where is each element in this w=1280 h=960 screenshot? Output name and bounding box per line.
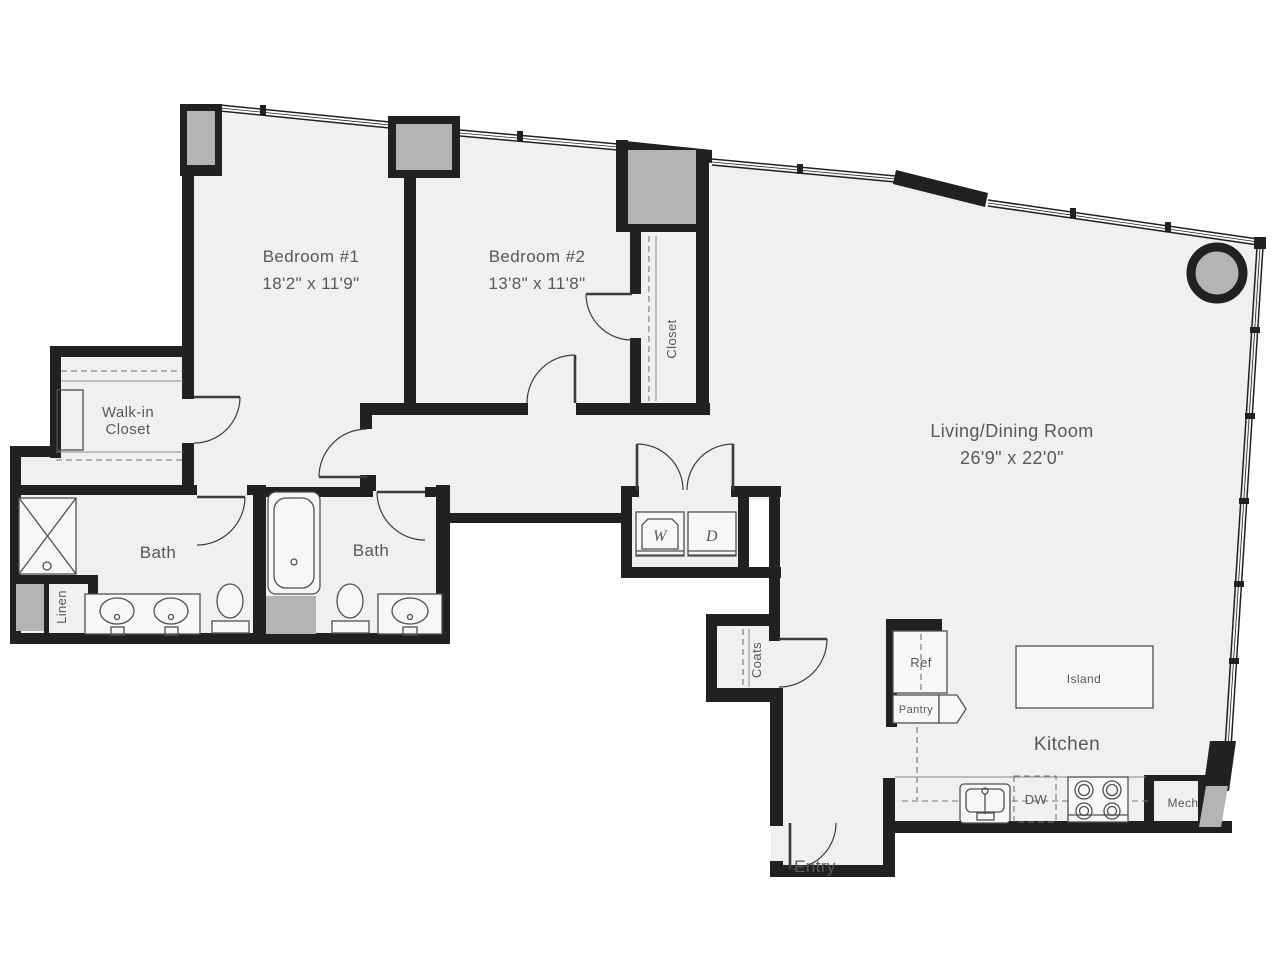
coats-label: Coats [749, 642, 764, 678]
kitchen-sink [960, 784, 1010, 823]
living-dims: 26'9" x 22'0" [960, 448, 1064, 468]
dryer-label: D [705, 528, 718, 545]
linen-label: Linen [54, 590, 69, 624]
bedroom2-label: Bedroom #2 [489, 247, 586, 266]
floorplan-canvas: Bedroom #1 18'2" x 11'9" Bedroom #2 13'8… [0, 0, 1280, 960]
ref-label: Ref [910, 655, 931, 670]
walkin-label-line1: Walk-in [102, 404, 154, 421]
bedroom1-dims: 18'2" x 11'9" [262, 274, 359, 293]
entry-label: Entry [794, 857, 836, 876]
double-vanity [85, 594, 200, 634]
bathtub [268, 492, 320, 594]
closet-label: Closet [664, 319, 679, 358]
island-label: Island [1067, 672, 1101, 686]
round-column [1191, 247, 1243, 299]
pantry-label: Pantry [899, 704, 933, 716]
bath1-label: Bath [140, 543, 177, 562]
dw-label: DW [1025, 792, 1048, 807]
stove [1068, 777, 1128, 822]
living-label: Living/Dining Room [930, 421, 1093, 441]
floorplan-page: Bedroom #1 18'2" x 11'9" Bedroom #2 13'8… [0, 0, 1280, 960]
mech-label: Mech [1168, 796, 1199, 810]
kitchen-label: Kitchen [1034, 734, 1100, 755]
washer-label: W [653, 528, 668, 545]
walkin-label-line2: Closet [106, 421, 151, 438]
bath2-label: Bath [353, 541, 390, 560]
bedroom1-label: Bedroom #1 [263, 247, 360, 266]
bedroom2-dims: 13'8" x 11'8" [488, 274, 585, 293]
